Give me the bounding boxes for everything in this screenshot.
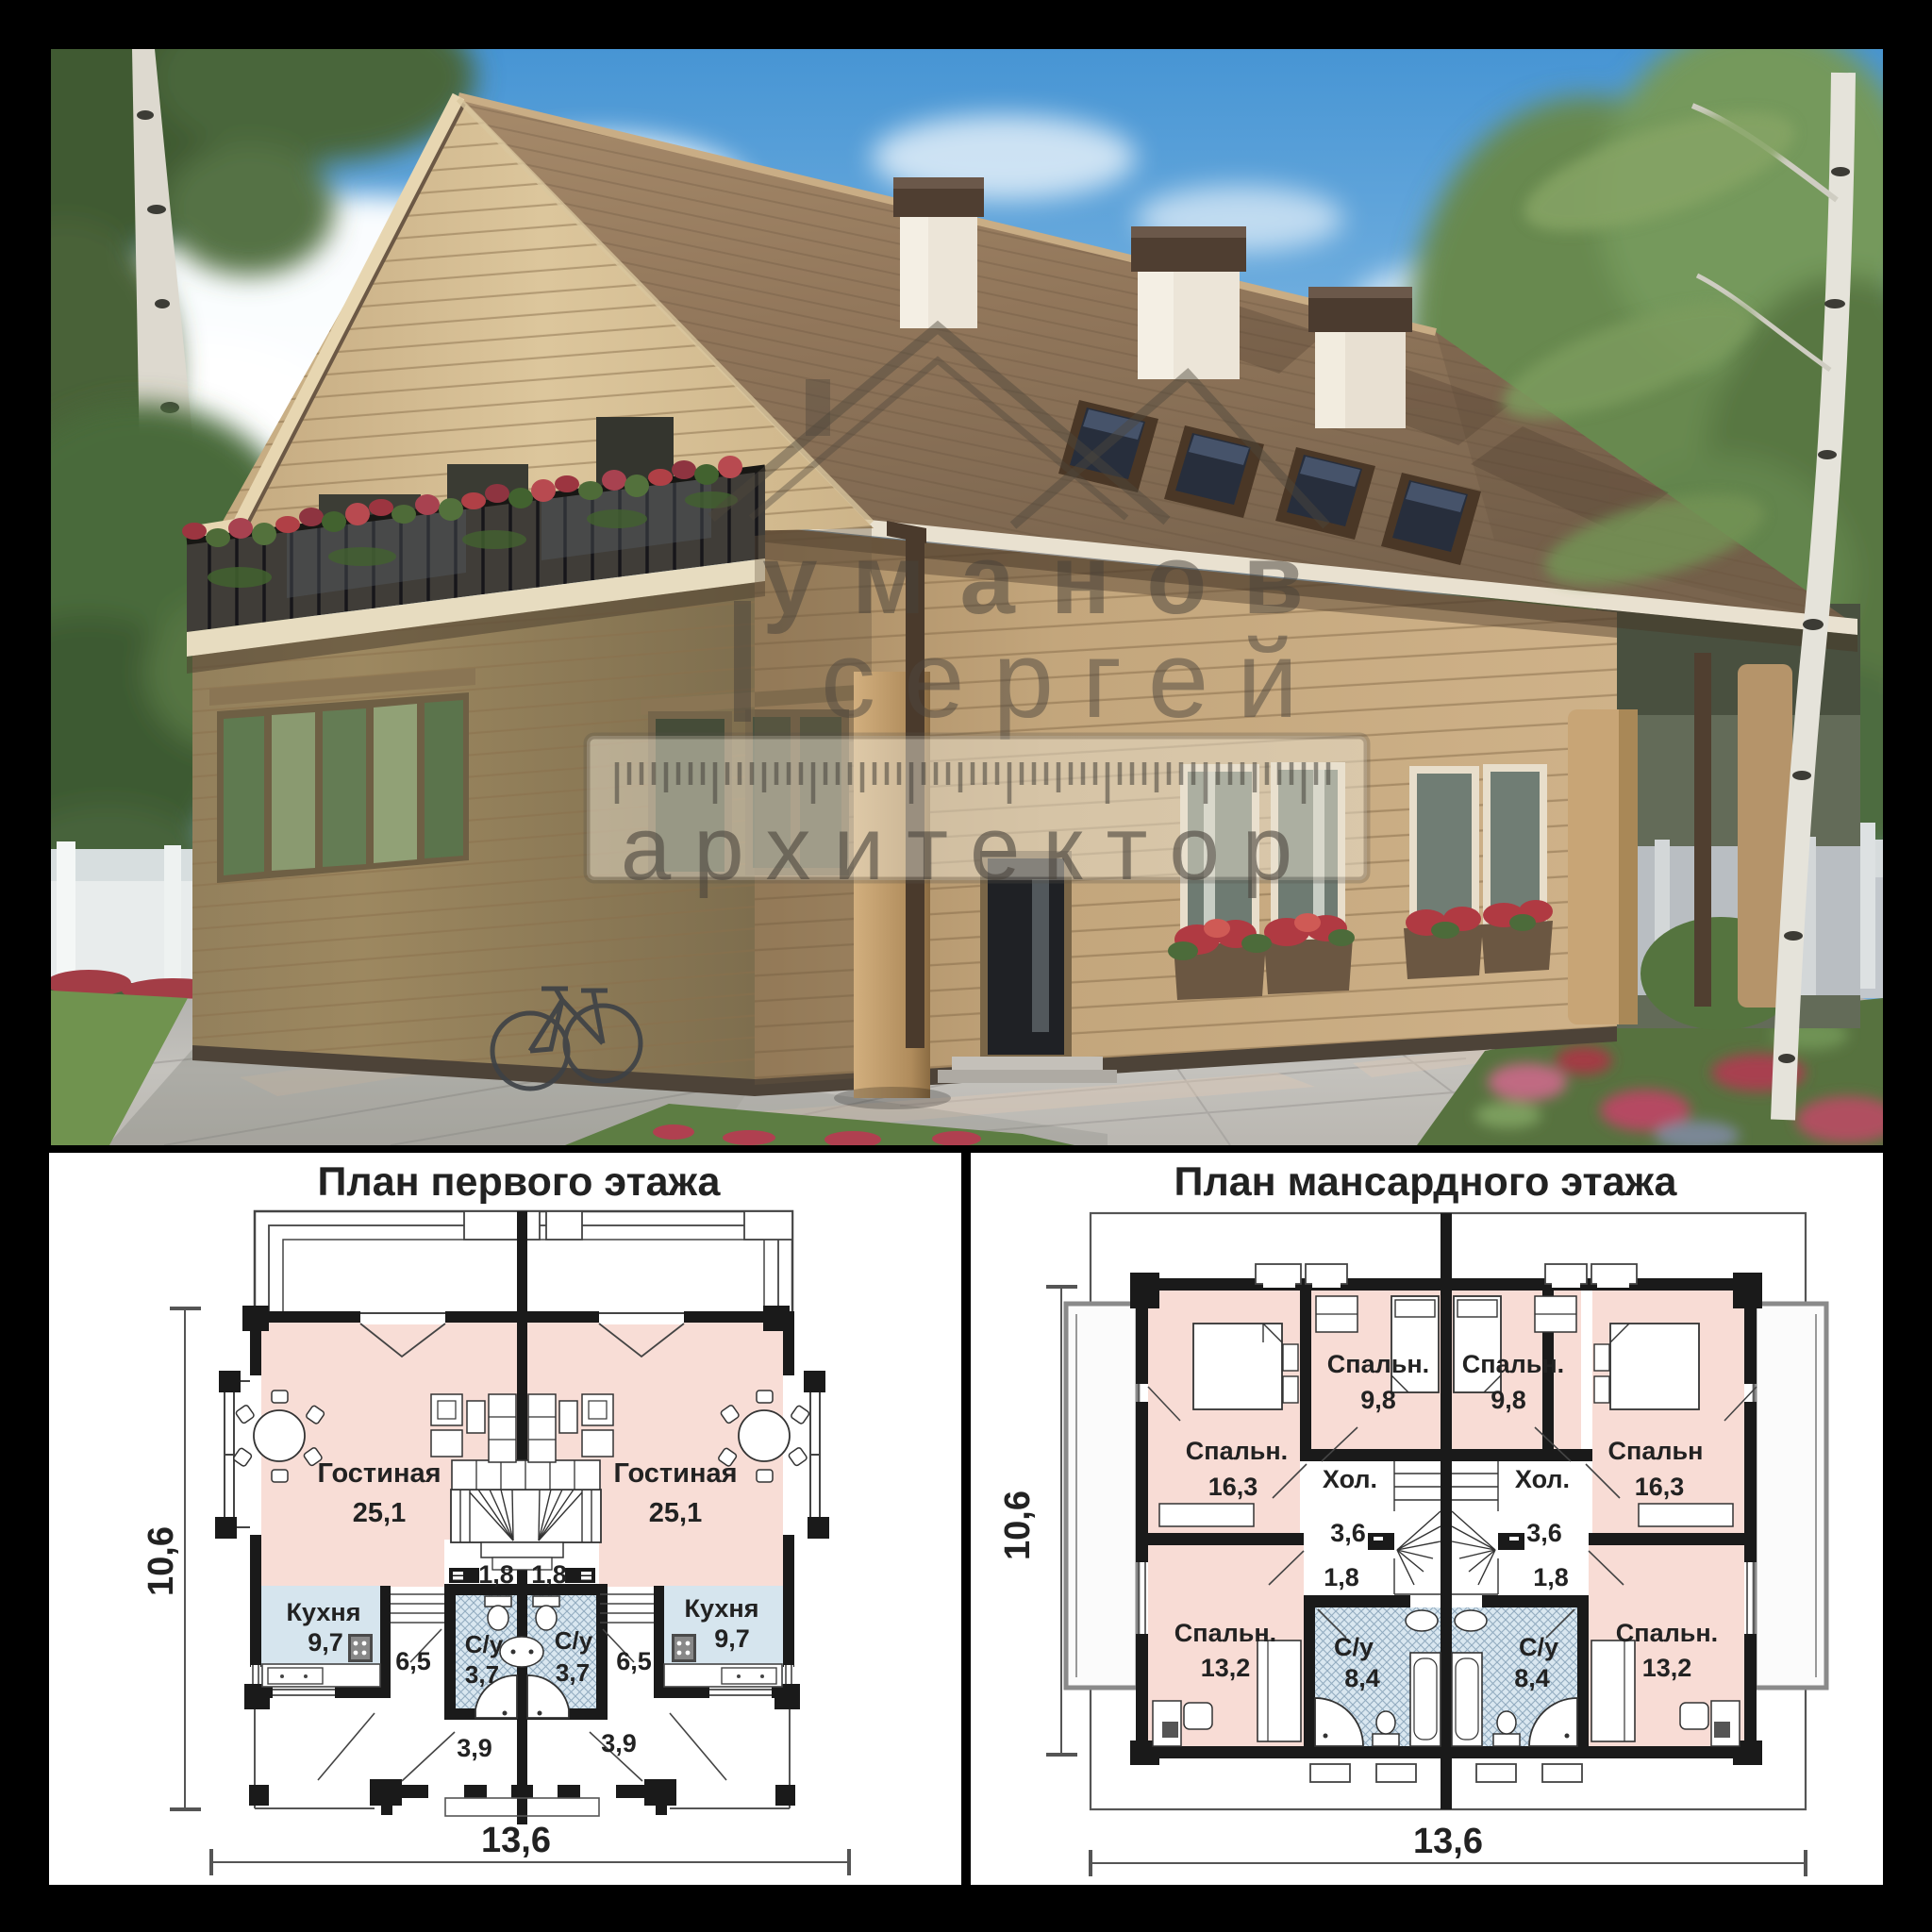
svg-text:9,7: 9,7 (308, 1628, 343, 1657)
svg-text:Спальн.: Спальн. (1186, 1437, 1288, 1465)
svg-text:Спальн.: Спальн. (1327, 1350, 1429, 1378)
svg-text:10,6: 10,6 (142, 1526, 181, 1596)
svg-text:Гостиная: Гостиная (613, 1458, 737, 1489)
svg-text:25,1: 25,1 (649, 1498, 702, 1528)
svg-text:С/у: С/у (1519, 1633, 1558, 1661)
svg-text:1,8: 1,8 (531, 1560, 567, 1589)
svg-text:3,9: 3,9 (601, 1729, 637, 1757)
svg-text:Кухня: Кухня (685, 1594, 759, 1623)
svg-text:9,8: 9,8 (1491, 1386, 1526, 1414)
svg-text:9,8: 9,8 (1360, 1386, 1396, 1414)
svg-text:3,6: 3,6 (1330, 1519, 1366, 1547)
svg-text:Кухня: Кухня (287, 1598, 361, 1626)
svg-text:3,6: 3,6 (1526, 1519, 1562, 1547)
svg-text:С/у: С/у (465, 1630, 504, 1658)
svg-text:Хол.: Хол. (1515, 1465, 1570, 1493)
svg-text:1,8: 1,8 (478, 1560, 514, 1589)
svg-text:13,6: 13,6 (1413, 1822, 1483, 1861)
svg-text:С/у: С/у (555, 1626, 593, 1655)
svg-text:архитектор: архитектор (621, 798, 1315, 899)
svg-text:8,4: 8,4 (1514, 1664, 1550, 1692)
svg-text:3,7: 3,7 (465, 1660, 499, 1689)
svg-text:3,9: 3,9 (457, 1734, 492, 1762)
svg-text:С/у: С/у (1334, 1633, 1374, 1661)
svg-text:13,2: 13,2 (1201, 1654, 1251, 1682)
svg-text:Спальн.: Спальн. (1616, 1619, 1718, 1647)
svg-text:Гостиная: Гостиная (317, 1458, 441, 1489)
svg-text:Хол.: Хол. (1323, 1465, 1377, 1493)
svg-text:6,5: 6,5 (616, 1647, 652, 1675)
svg-text:25,1: 25,1 (353, 1498, 406, 1528)
svg-text:10,6: 10,6 (998, 1491, 1038, 1560)
svg-text:13,2: 13,2 (1642, 1654, 1692, 1682)
svg-text:3,7: 3,7 (556, 1658, 590, 1687)
svg-text:Спальн.: Спальн. (1462, 1350, 1564, 1378)
svg-text:9,7: 9,7 (714, 1624, 750, 1653)
svg-text:План мансардного этажа: План мансардного этажа (1174, 1159, 1678, 1205)
svg-text:1,8: 1,8 (1533, 1563, 1569, 1591)
svg-text:6,5: 6,5 (395, 1647, 431, 1675)
svg-text:1,8: 1,8 (1324, 1563, 1359, 1591)
svg-text:8,4: 8,4 (1344, 1664, 1380, 1692)
svg-text:13,6: 13,6 (481, 1821, 551, 1860)
svg-text:Спальн.: Спальн. (1174, 1619, 1276, 1647)
svg-text:Спальн: Спальн (1608, 1437, 1704, 1465)
svg-text:16,3: 16,3 (1208, 1473, 1258, 1501)
svg-text:План первого этажа: План первого этажа (318, 1159, 722, 1205)
svg-text:сергей: сергей (821, 618, 1326, 741)
svg-text:16,3: 16,3 (1635, 1473, 1685, 1501)
